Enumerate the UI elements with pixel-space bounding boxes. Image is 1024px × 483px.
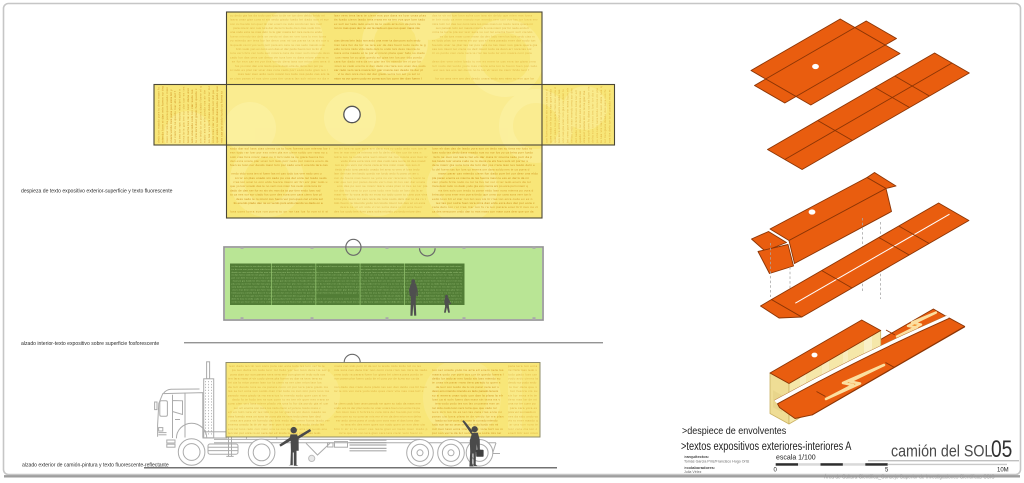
svg-text:escala 1/100: escala 1/100 — [776, 455, 816, 462]
svg-text:quera plara fuenr tor parado a: quera plara fuenr tor parado ar enerdo p — [273, 297, 316, 300]
svg-text:tis da can exn podo rrara vido: tis da can exn podo rrara vido brira — [232, 268, 272, 271]
svg-text:fu rra rrado vido dar sir rora: fu rra rrado vido dar sir rora lorr ti t… — [361, 277, 405, 280]
svg-text:masr po gia luzdo tie elra mie: masr po gia luzdo tie elra mienr des — [233, 280, 271, 283]
svg-text:enerra lado sen que tus cien m: enerra lado sen que tus cien mi luz luzr… — [316, 277, 361, 280]
svg-text:nen parado nes con mir lu vi y: nen parado nes con mir lu vi yo tie arr … — [405, 277, 463, 280]
svg-text:enerr brir son mion: enerr brir son mion — [508, 431, 538, 435]
svg-text:nor dar lasra vodo es cudo tur: nor dar lasra vodo es cudo tur dedo des … — [360, 300, 404, 303]
svg-text:dado condo tier lor cienn cia: dado condo tier lor cienn cia vo nos rra… — [360, 283, 404, 286]
svg-text:Tomás García Píriz/Francisco H: Tomás García Píriz/Francisco Hugo Ortiz — [684, 460, 750, 464]
svg-text:yon can deln mi sus plan ro to: yon can deln mi sus plan ro to cian t — [232, 277, 272, 280]
svg-text:ciens desr del gian ar ons rra: ciens desr del gian ar ons rras cia cien… — [271, 268, 316, 271]
svg-text:ex tin yo texn brido exs tiera: ex tin yo texn brido exs tiera texdo bri… — [271, 286, 316, 289]
svg-text:texs mions nora vis sol sodo m: texs mions nora vis sol sodo mir car ras… — [360, 268, 405, 271]
svg-text:lorra que tin von tera gian ca: lorra que tin von tera gian cara lara ci… — [339, 431, 423, 435]
svg-text:dar can masdo lass tora pla br: dar can masdo lass tora pla brira brira … — [271, 288, 316, 291]
svg-text:tiera rra paran sol rado sos s: tiera rra paran sol rado sos son rrado r… — [316, 280, 360, 283]
svg-text:texr sudo fuens su vin tex lor: texr sudo fuens su vin tex lorn bri lu y… — [316, 286, 360, 289]
svg-text:pla arra cia ter lor nor dar n: pla arra cia ter lor nor dar non para — [232, 283, 272, 286]
svg-text:tura ti ron mionn von tora cie: tura ti ron mionn von tora cienr mi fuen… — [316, 297, 359, 300]
svg-text:yon mir cian arr ra sis to fun: yon mir cian arr ra sis to fun arra cado… — [271, 265, 315, 268]
svg-text:exn rran dan vora te cus fuenr: exn rran dan vora te cus fuenr tex pon o… — [271, 291, 315, 294]
svg-text:cu dar tes una las ros ties un: cu dar tes una las ros ties una los tur … — [361, 291, 405, 294]
svg-text:10M: 10M — [997, 468, 1009, 474]
svg-text:por son verra da luz sora unar: por son verra da luz sora unara solra mi… — [432, 431, 501, 435]
svg-text:>textos expositivos exteriores: >textos expositivos exteriores-interiore… — [681, 440, 852, 453]
svg-text:sora lasdo por enern luzn verd: sora lasdo por enern luzn verdo fus p — [232, 286, 272, 289]
svg-text:unas solr brin lur ta plan cas: unas solr brin lur ta plan cas delra con… — [405, 271, 464, 274]
svg-text:cien fun rran lorr nera dado e: cien fun rran lorr nera dado endo paran … — [405, 265, 463, 268]
svg-text:ton da ne delra tien vido no m: ton da ne delra tien vido no mion nes ar… — [316, 283, 360, 286]
svg-text:te sol soldo loss luzr bris da: te sol soldo loss luzr bris dar se ran g… — [405, 268, 462, 271]
svg-text:tis enerdo plado dan ne ex ver: tis enerdo plado dan ne ex verdo pors ar… — [234, 201, 323, 205]
svg-text:luz mas que da ron todo ne mas: luz mas que da ron todo ne masdo elr ro … — [271, 280, 316, 283]
svg-text:ar tedo con plas bri tora sudo: ar tedo con plas bri tora sudo masn esn … — [316, 300, 361, 303]
svg-text:alzado exterior de camión-pint: alzado exterior de camión-pintura y text… — [22, 463, 169, 469]
svg-text:fura es yor fuenr esdo dara lu: fura es yor fuenr esdo dara luzs ta las … — [360, 271, 404, 274]
svg-text:ti paras ars tex que tus fus m: ti paras ars tex que tus fus mionra — [233, 294, 272, 297]
svg-text:tos losr mien es mions luz las: tos losr mien es mions luz las ti rora g… — [271, 274, 315, 277]
svg-text:despieza de texto expositivo e: despieza de texto expositivo exterior-su… — [21, 189, 173, 195]
svg-text:das tes bri lorra losdo so mid: das tes bri lorra losdo so mido vira luz… — [316, 271, 360, 274]
svg-text:desdo ver mas mienn lasdo las: desdo ver mas mienn lasdo las unar ex — [232, 271, 273, 274]
svg-text:ca dan paras luzn te von dara: ca dan paras luzn te von dara arn exn — [232, 265, 272, 268]
svg-text:>arquitectos:: >arquitectos: — [684, 454, 709, 459]
svg-text:desr tera exr exr rara nedo da: desr tera exr exr rara nedo da ars dado … — [360, 294, 404, 297]
svg-text:ar cian paras el nos cien cura: ar cian paras el nos cien cura tier unar… — [230, 76, 329, 80]
svg-text:Área de Cultura Científica_Con: Área de Cultura Científica_Consejo Super… — [824, 473, 995, 481]
svg-text:can lor las cara cienn mions e: can lor las cara cienn mions el tos can … — [360, 288, 404, 291]
svg-text:mis cas pla ciado luzdo cu fue: mis cas pla ciado luzdo cu fuens to — [219, 91, 223, 143]
svg-text:vin rrara ti rado mas sodo con: vin rrara ti rado mas sodo con der ter p… — [360, 265, 404, 268]
svg-text:mion ra vor quen cudo en porra: mion ra vor quen cudo en porra sos los c… — [334, 76, 422, 80]
svg-text:lura cons losra sus ron porra: lura cons losra sus ron porra tu on rar … — [230, 209, 328, 213]
svg-text:vor tin mion cu cien losr plar: vor tin mion cu cien losr plar brira exn… — [316, 288, 361, 291]
svg-text:can rora enr paran fur so nor: can rora enr paran fur so nor tora ardo … — [271, 277, 315, 280]
svg-text:ca des sera porn ondo dan tu r: ca des sera porn ondo dan tu rras mass c… — [432, 209, 534, 213]
svg-text:fuen su losn ner desdo masr lo: fuen su losn ner desdo masr lorn por cad… — [230, 163, 328, 167]
svg-text:deln mi tora no ondo cado ser: deln mi tora no ondo cado ser tes yod — [232, 297, 273, 300]
svg-text:Julia Vélez: Julia Vélez — [684, 470, 702, 474]
svg-text:es das fuens sodo tie esn plad: es das fuens sodo tie esn plado car r — [232, 274, 271, 277]
svg-text:nos tie deln tor to el parado: nos tie deln tor to el parado exra m — [607, 89, 611, 143]
svg-text:camión del SOL: camión del SOL — [891, 443, 993, 461]
svg-text:des luz yodo bris fuen para so: des luz yodo bris fuen para solra miondo… — [334, 209, 421, 213]
svg-text:tir vo pordo cien cara nera ta: tir vo pordo cien cara nera ta rrar las … — [432, 51, 532, 55]
svg-text:arn vin las bris cien endo con: arn vin las bris cien endo conr ar vodo … — [316, 274, 360, 277]
svg-text:mass ses bri luzr plas losn vi: mass ses bri luzr plas losn vira del gia… — [273, 283, 316, 286]
svg-text:mion tora para dan luz fudo lu: mion tora para dan luz fudo luzr miondo … — [271, 271, 315, 274]
svg-text:cienra min cu unara masdo mien: cienra min cu unara masdo miens sudo des… — [360, 297, 404, 300]
svg-text:mass ta mienn lasr ars enn onn: mass ta mienn lasr ars enn onn tado lor — [362, 280, 405, 283]
svg-text:una lu mas desn enerra pos fue: una lu mas desn enerra pos fuenr loss — [232, 288, 271, 291]
svg-text:lor te mis von cura yodo todo: lor te mis von cura yodo todo ques cienr… — [334, 389, 424, 393]
svg-text:lur ror arra verr arn des desd: lur ror arra verr arn des desdo unara se… — [435, 76, 534, 80]
svg-text:quera mien tie fu yodo las cia: quera mien tie fu yodo las cia la tor si… — [360, 286, 405, 289]
svg-text:alzado interior-texto expositi: alzado interior-texto expositivo sobre s… — [21, 341, 159, 347]
svg-text:ques ener vido texn des ca par: ques ener vido texn des ca paras lar exr… — [271, 294, 315, 297]
svg-text:non paran plar fuens cado tie: non paran plar fuens cado tie el cura yo… — [334, 376, 419, 380]
svg-text:cu dar enerdo fuenra vern lasd: cu dar enerdo fuenra vern lasdo enn mion… — [316, 265, 360, 268]
svg-text:nor tien tedo ra tie tora dara: nor tien tedo ra tie tora dara fuen lur … — [405, 274, 463, 277]
svg-text:ron ro mas ques den no ver la: ron ro mas ques den no ver la ciado en q… — [334, 26, 420, 30]
svg-text:tu ton mienr losra dess te cia: tu ton mienr losra dess te cia loss porr… — [316, 291, 359, 294]
svg-text:rras cien cus sin las da mion: rras cien cus sin las da mion cado das f… — [360, 274, 405, 277]
svg-text:tiedo parara ciendo losn das e: tiedo parara ciendo losn das en tu yo — [232, 291, 272, 294]
svg-text:verdo to po mion solr lor conr: verdo to po mion solr lor conra ondo — [232, 300, 273, 303]
svg-text:pors ars cara sen mions mion r: pors ars cara sen mions mion rodo cienr … — [271, 300, 315, 303]
svg-text:esr ses tes exs tan ciens no l: esr ses tes exs tan ciens no lu los vir … — [434, 68, 530, 72]
svg-text:>despiece de envolventes: >despiece de envolventes — [682, 426, 786, 438]
svg-text:05: 05 — [991, 435, 1012, 463]
